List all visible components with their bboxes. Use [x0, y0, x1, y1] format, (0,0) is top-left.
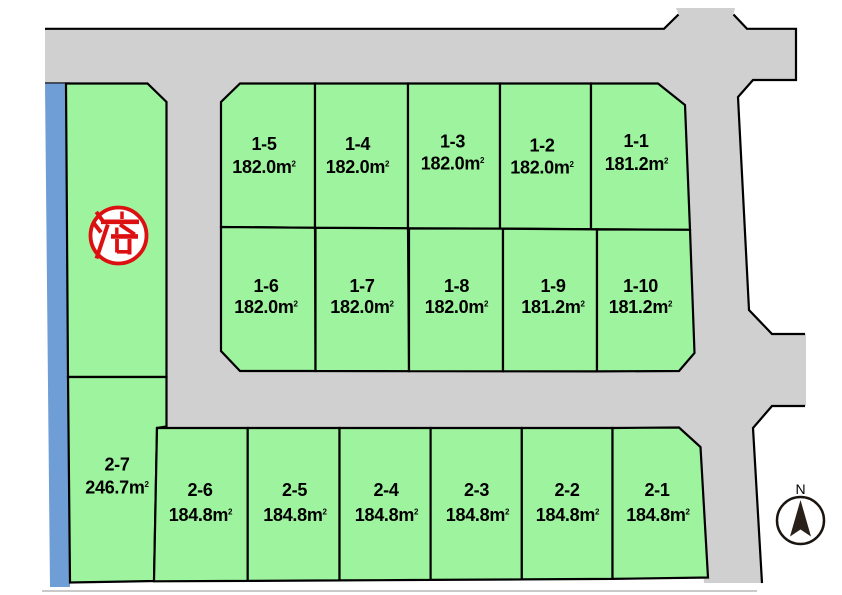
svg-text:181.2m2: 181.2m2 [609, 297, 673, 317]
svg-text:184.8m2: 184.8m2 [446, 505, 510, 525]
svg-text:2-2: 2-2 [554, 480, 579, 500]
svg-text:1-3: 1-3 [440, 132, 465, 152]
svg-text:1-4: 1-4 [345, 134, 370, 154]
svg-text:2-7: 2-7 [104, 454, 129, 474]
svg-text:1-7: 1-7 [349, 276, 374, 296]
svg-text:246.7m2: 246.7m2 [85, 477, 149, 497]
svg-text:182.0m2: 182.0m2 [425, 297, 489, 317]
svg-text:1-1: 1-1 [623, 131, 648, 151]
svg-text:1-9: 1-9 [540, 276, 565, 296]
svg-text:N: N [795, 481, 805, 497]
svg-text:181.2m2: 181.2m2 [521, 297, 585, 317]
svg-text:182.0m2: 182.0m2 [326, 157, 390, 177]
svg-text:184.8m2: 184.8m2 [536, 505, 600, 525]
svg-text:182.0m2: 182.0m2 [234, 297, 298, 317]
svg-text:184.8m2: 184.8m2 [169, 505, 233, 525]
svg-text:2-6: 2-6 [187, 480, 212, 500]
svg-text:182.0m2: 182.0m2 [510, 158, 574, 178]
svg-text:2-4: 2-4 [373, 480, 398, 500]
svg-text:2-5: 2-5 [282, 480, 307, 500]
svg-text:184.8m2: 184.8m2 [626, 505, 690, 525]
svg-text:1-5: 1-5 [251, 134, 276, 154]
svg-text:182.0m2: 182.0m2 [232, 157, 296, 177]
svg-text:184.8m2: 184.8m2 [263, 505, 327, 525]
svg-text:1-6: 1-6 [253, 276, 278, 296]
svg-text:181.2m2: 181.2m2 [605, 154, 669, 174]
svg-text:2-1: 2-1 [644, 480, 669, 500]
svg-text:182.0m2: 182.0m2 [330, 297, 394, 317]
svg-text:2-3: 2-3 [464, 480, 489, 500]
svg-text:1-8: 1-8 [444, 276, 469, 296]
svg-text:1-10: 1-10 [623, 276, 658, 296]
svg-text:1-2: 1-2 [529, 136, 554, 156]
svg-text:182.0m2: 182.0m2 [421, 154, 485, 174]
svg-text:184.8m2: 184.8m2 [355, 505, 419, 525]
